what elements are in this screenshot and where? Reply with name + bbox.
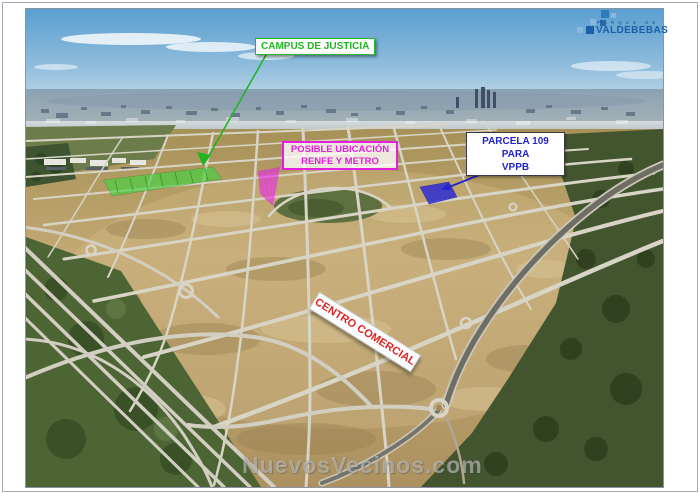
renfe-metro-label-line2: RENFE Y METRO <box>284 156 396 168</box>
parcela-109-label-line1: PARCELA 109 PARA <box>467 135 564 161</box>
campus-parcel-highlight <box>103 167 222 196</box>
logo-square-icon <box>601 10 609 18</box>
logo-square-icon <box>586 26 594 34</box>
logo-name: VALDEBEBAS <box>596 25 668 36</box>
renfe-metro-label-line1: POSIBLE UBICACIÓN <box>284 144 396 156</box>
slide-page: CAMPUS DE JUSTICIA POSIBLE UBICACIÓN REN… <box>0 0 700 494</box>
logo-square-icon <box>611 13 616 18</box>
parcela-109-label-line2: VPPB <box>467 161 564 174</box>
campus-leader-line <box>207 55 266 159</box>
campus-de-justicia-label: CAMPUS DE JUSTICIA <box>255 38 375 55</box>
logo-square-icon <box>577 27 583 33</box>
valdebebas-logo: PARQUE DE VALDEBEBAS <box>575 9 667 42</box>
watermark-text: NuevosVecinos.com <box>242 452 483 479</box>
annotation-overlay <box>0 0 700 494</box>
renfe-metro-label: POSIBLE UBICACIÓN RENFE Y METRO <box>282 141 398 170</box>
parcela-109-label: PARCELA 109 PARA VPPB <box>466 132 565 176</box>
